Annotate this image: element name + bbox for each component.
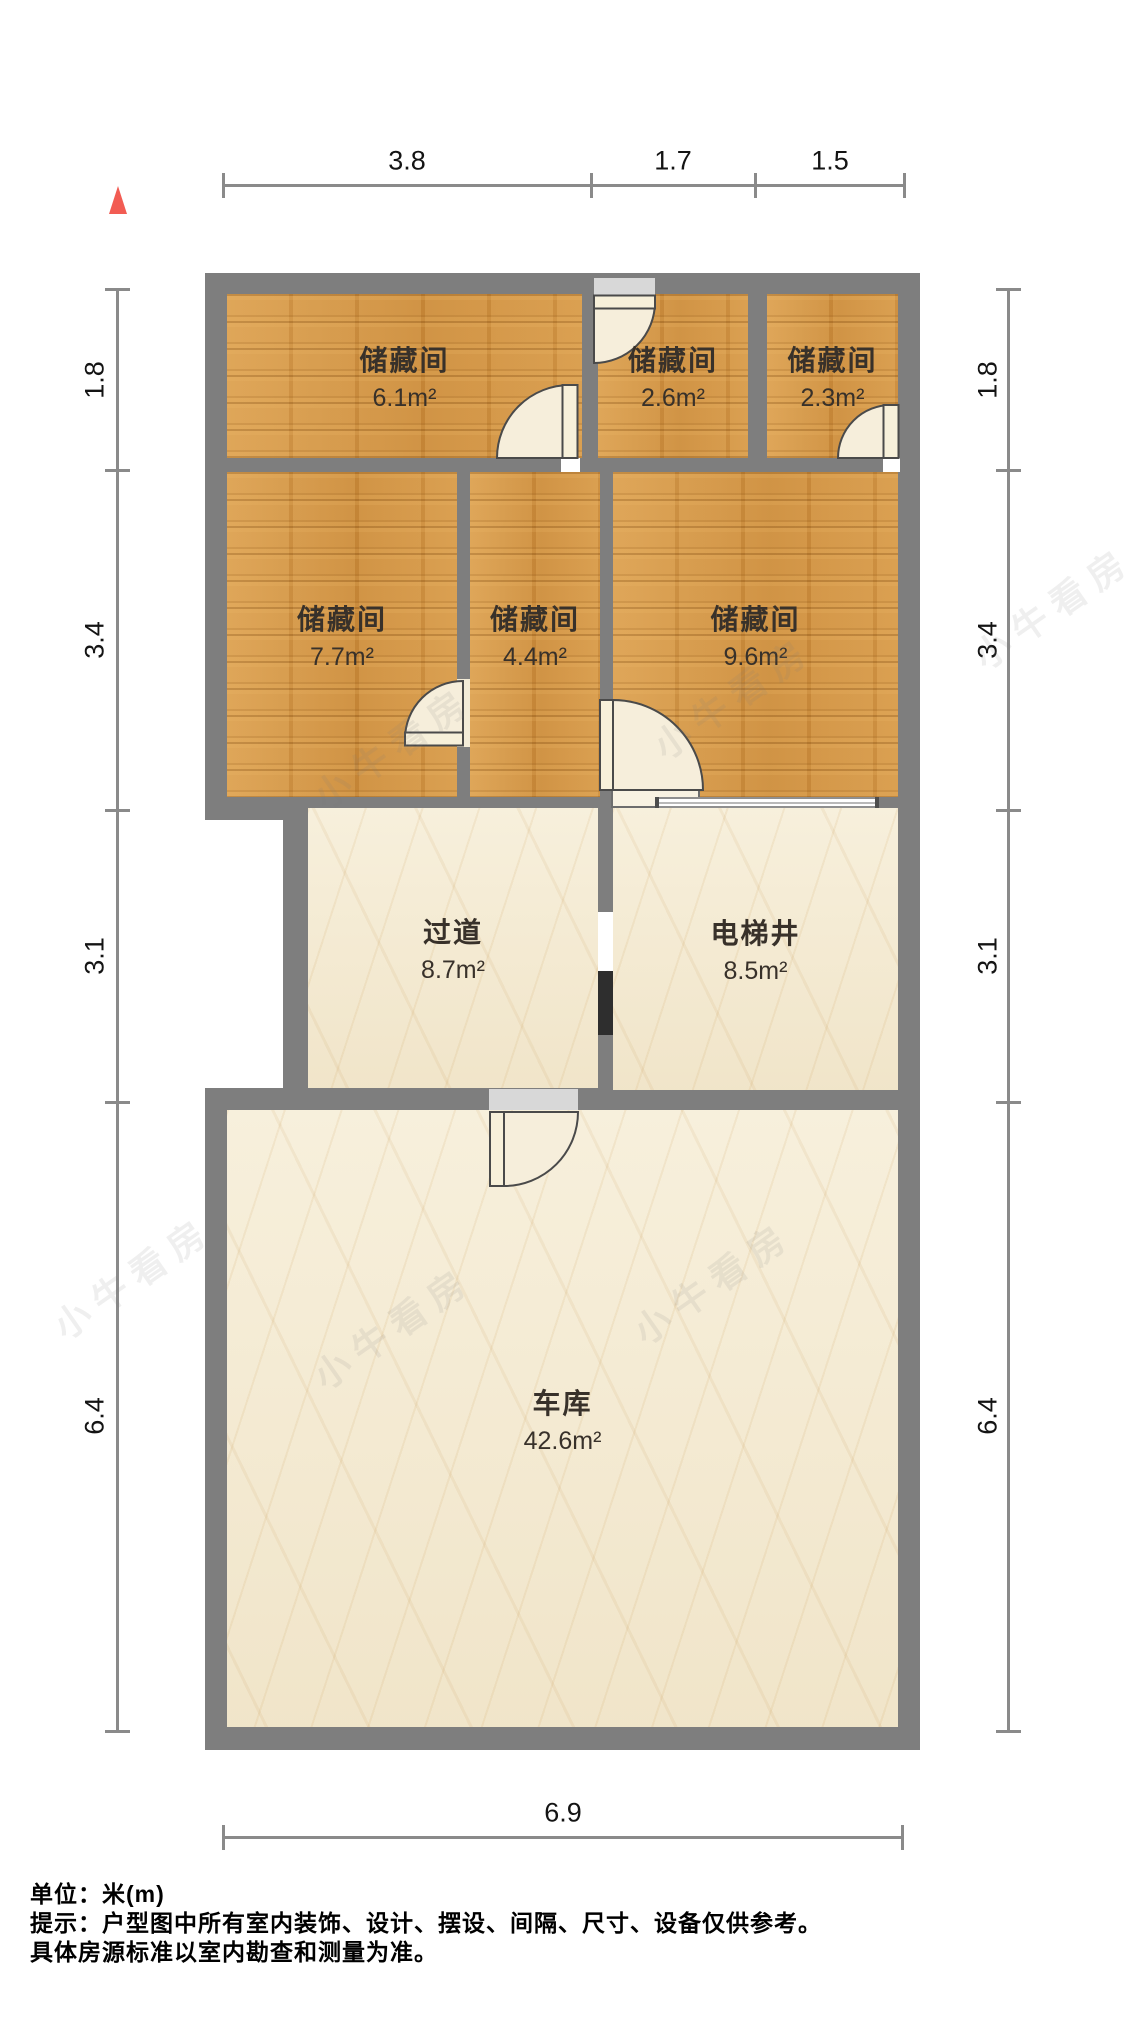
- room-area: 6.1m²: [359, 384, 449, 413]
- door-symbols: [0, 0, 1125, 2023]
- room-name: 车库: [524, 1382, 602, 1422]
- room-label: 储藏间 6.1m²: [359, 339, 449, 413]
- room-area: 8.5m²: [710, 957, 800, 986]
- room-name: 电梯井: [710, 912, 800, 952]
- room-name: 储藏间: [490, 598, 580, 638]
- room-label: 车库 42.6m²: [524, 1382, 602, 1456]
- room-label: 储藏间 2.6m²: [628, 339, 718, 413]
- door-arc-storage-6_1: [497, 385, 570, 458]
- room-area: 8.7m²: [421, 956, 485, 985]
- room-label: 电梯井 8.5m²: [710, 912, 800, 986]
- room-label: 储藏间 7.7m²: [297, 598, 387, 672]
- room-name: 储藏间: [297, 598, 387, 638]
- room-area: 2.3m²: [787, 384, 877, 413]
- room-area: 4.4m²: [490, 643, 580, 672]
- room-label: 储藏间 4.4m²: [490, 598, 580, 672]
- room-name: 储藏间: [628, 339, 718, 379]
- room-label: 储藏间 9.6m²: [710, 598, 800, 672]
- door-leaf-storage-6_1: [563, 385, 578, 458]
- door-leaf-garage: [490, 1112, 504, 1186]
- door-arc-storage-9_6: [613, 700, 703, 790]
- room-area: 7.7m²: [297, 643, 387, 672]
- door-leaf-storage-7_7: [405, 733, 463, 746]
- room-area: 2.6m²: [628, 384, 718, 413]
- room-area: 42.6m²: [524, 1427, 602, 1456]
- room-name: 过道: [421, 911, 485, 951]
- door-arc-garage: [504, 1112, 578, 1186]
- room-label: 过道 8.7m²: [421, 911, 485, 985]
- door-arc-storage-7_7: [405, 681, 463, 739]
- room-label: 储藏间 2.3m²: [787, 339, 877, 413]
- room-name: 储藏间: [787, 339, 877, 379]
- room-name: 储藏间: [359, 339, 449, 379]
- floorplan-page: 3.8 1.7 1.5 1.8 3.4 3.1 6.4 1.8 3.4 3.1 …: [0, 0, 1125, 2023]
- room-area: 9.6m²: [710, 643, 800, 672]
- door-leaf-storage-2_6: [594, 296, 655, 309]
- door-leaf-storage-2_3: [884, 405, 899, 458]
- door-leaf-storage-9_6: [600, 700, 613, 790]
- room-name: 储藏间: [710, 598, 800, 638]
